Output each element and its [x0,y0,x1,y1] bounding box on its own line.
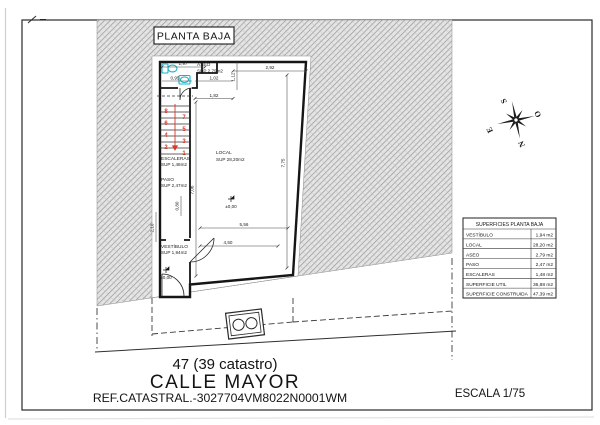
table-row-label: ASEO [466,252,480,258]
street-name: CALLE MAYOR [150,372,300,393]
room-sup-aseo: SUP 2,79m2 [197,69,223,74]
surfaces-table: SUPERFICIES PLANTA BAJA VESTÍBULO 1,94 m… [463,218,556,298]
room-sup-local: SUP 28,20m2 [216,157,245,162]
table-row-label: ESCALERAS [466,272,495,278]
compass-rose: S O E N [485,97,544,149]
compass-letter-o: O [532,109,543,118]
scale-label: ESCALA 1/75 [455,388,525,400]
dim-vestibulo-height: 2,10 [150,223,155,232]
room-sup-escaleras: SUP 1,48m2 [161,162,187,167]
table-row-value: 47,39 m2 [533,292,553,298]
room-label-local: LOCAL [216,150,232,156]
dim-aseo-bottom: 1,82 [210,93,219,98]
address-number: 47 (39 catastro) [172,356,277,373]
manhole-symbol [226,309,265,339]
table-row-label: PASO [466,262,479,268]
catastral-ref: REF.CATASTRAL.-3027704VM8022N0001WM [93,391,347,405]
table-row-value: 1,94 m2 [536,233,554,239]
dim-width-lower: 4,50 [224,240,233,245]
level-marker-vestibulo: ±0,00 [160,275,172,280]
table-row-value: 36,88 m2 [533,282,553,288]
table-row-value: 2,47 m2 [536,262,554,268]
compass-letter-n: N [516,139,527,148]
outer-walls [160,62,306,297]
compass-letter-s: S [498,97,508,105]
level-marker-local: ±0,00 [225,204,237,209]
dim-notch-depth: 1,12 [231,72,236,81]
table-row-value: 1,48 m2 [536,272,554,278]
floor-plan-drawing: PLANTA BAJA [0,0,600,425]
table-row-label: SUPERFICIE CONSTRUIDA [466,292,529,298]
dim-aseo-door: 1,02 [210,75,219,80]
dim-depth-right: 7,75 [281,158,286,167]
table-row-label: SUPERFICIE UTIL [466,282,507,288]
address-block: 47 (39 catastro) CALLE MAYOR REF.CATASTR… [93,356,347,405]
dim-paso-width: 0,80 [175,201,180,210]
dim-width-upper: 5,56 [240,222,249,227]
title-box: PLANTA BAJA [154,27,234,44]
dim-facade-top: 2,92 [266,65,275,70]
table-row-label: LOCAL [466,243,482,249]
dim-depth-left: 7,06 [190,185,195,194]
room-label-vestibulo: VESTÍBULO [161,243,188,250]
table-row-value: 28,20 m2 [533,243,553,249]
compass-letter-e: E [485,126,495,135]
table-title: SUPERFICIES PLANTA BAJA [476,222,544,228]
table-row-label: VESTÍBULO [466,232,493,239]
street-edge-line [95,331,456,352]
table-row-value: 2,79 m2 [536,252,554,258]
dim-aseo-left: 0,95 [171,75,180,80]
building-plan: 8 7 6 5 4 3 2 1 ASEO SUP 2,79m2 ESCALERA… [150,61,308,297]
room-sup-vestibulo: SUP 1,94m2 [161,250,187,255]
dim-aseo-width: 1,97 [179,61,188,66]
room-sup-paso: SUP 2,47m2 [161,183,187,188]
page-title: PLANTA BAJA [157,31,231,43]
